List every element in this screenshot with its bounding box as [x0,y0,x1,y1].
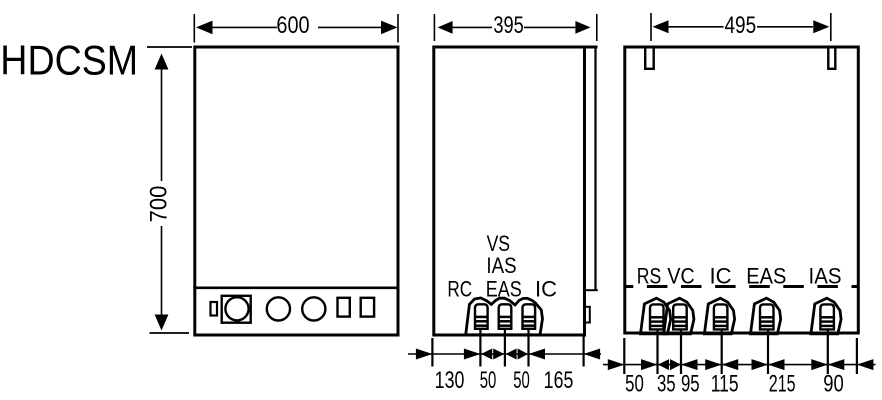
svg-text:215: 215 [769,372,796,398]
svg-text:EAS: EAS [746,265,786,289]
svg-text:IC: IC [710,264,732,289]
svg-text:RS: RS [637,265,661,289]
svg-text:495: 495 [724,11,756,39]
svg-text:130: 130 [435,368,465,394]
svg-text:115: 115 [711,371,739,397]
svg-text:165: 165 [544,368,574,394]
svg-text:VS: VS [487,232,510,256]
svg-text:95: 95 [681,371,700,398]
svg-text:35: 35 [657,371,676,398]
svg-text:50: 50 [513,368,530,394]
svg-text:50: 50 [480,368,497,394]
svg-text:VC: VC [667,264,694,288]
svg-text:700: 700 [145,186,172,223]
svg-text:IC: IC [535,277,557,302]
svg-text:600: 600 [276,11,309,38]
svg-text:90: 90 [823,370,844,397]
svg-text:50: 50 [625,371,644,398]
svg-text:RC: RC [447,278,472,303]
svg-text:IAS: IAS [486,255,516,279]
svg-text:HDCSM: HDCSM [0,38,138,84]
svg-text:395: 395 [493,12,523,39]
svg-text:IAS: IAS [809,264,842,289]
